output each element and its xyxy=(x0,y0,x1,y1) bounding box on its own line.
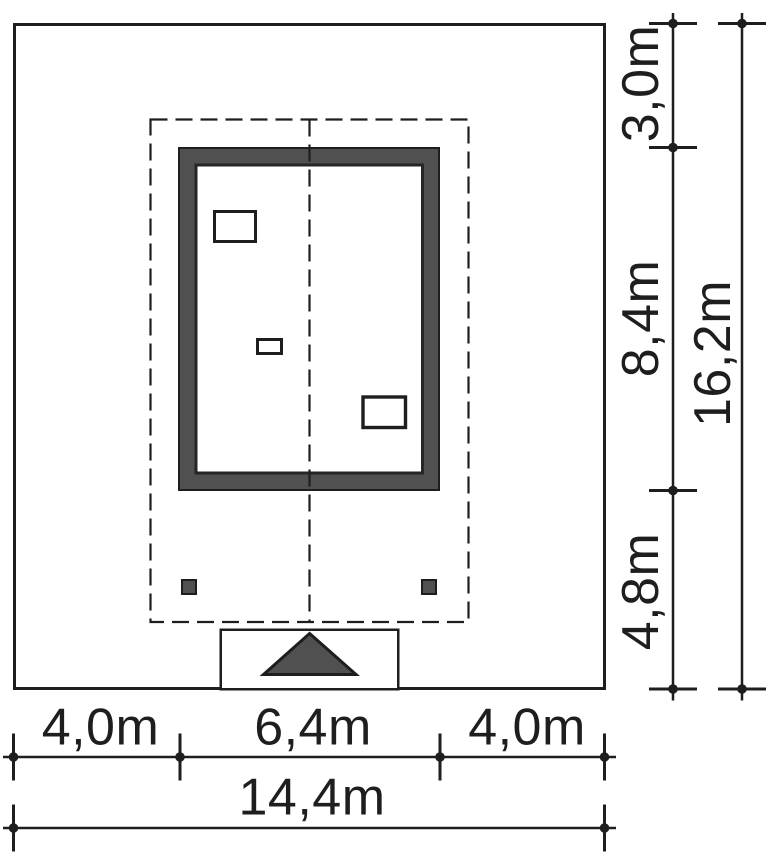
svg-text:6,4m: 6,4m xyxy=(254,699,372,757)
svg-text:3,0m: 3,0m xyxy=(612,25,670,143)
svg-text:8,4m: 8,4m xyxy=(612,260,670,378)
svg-text:16,2m: 16,2m xyxy=(684,280,742,427)
svg-text:14,4m: 14,4m xyxy=(238,769,385,827)
svg-text:4,8m: 4,8m xyxy=(612,533,670,651)
svg-text:4,0m: 4,0m xyxy=(468,699,586,757)
svg-text:4,0m: 4,0m xyxy=(42,699,160,757)
